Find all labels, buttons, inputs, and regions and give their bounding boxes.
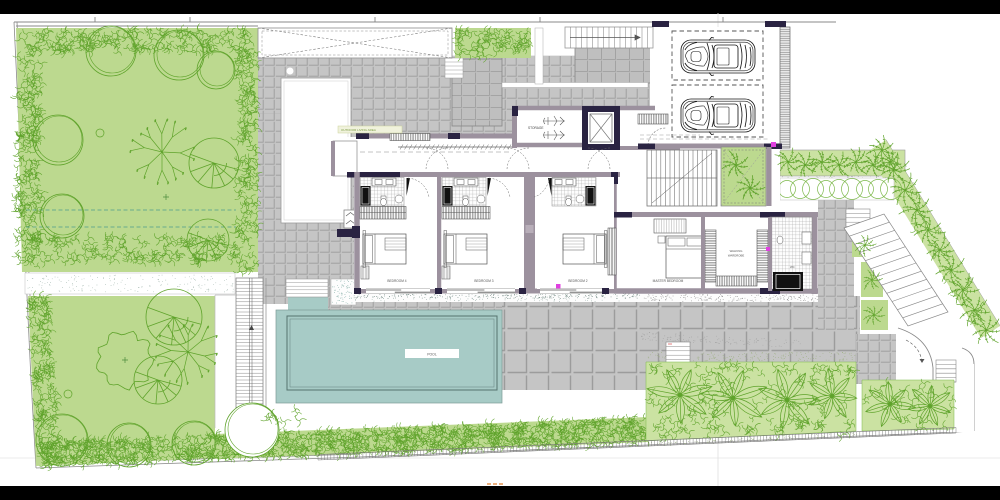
svg-text:MASTER BEDROOM: MASTER BEDROOM	[653, 279, 684, 283]
svg-text:WARDROBE: WARDROBE	[728, 254, 745, 258]
svg-text:WALKING: WALKING	[730, 249, 743, 253]
svg-text:BEDROOM 3: BEDROOM 3	[474, 279, 493, 283]
svg-text:WC: WC	[790, 265, 795, 269]
svg-text:POOL: POOL	[427, 353, 437, 357]
svg-text:STORAGE: STORAGE	[528, 126, 544, 130]
svg-text:BEDROOM 2: BEDROOM 2	[568, 279, 587, 283]
svg-text:OUTDOOR LIVING AREA: OUTDOOR LIVING AREA	[341, 128, 376, 132]
svg-text:BEDROOM 4: BEDROOM 4	[387, 279, 406, 283]
